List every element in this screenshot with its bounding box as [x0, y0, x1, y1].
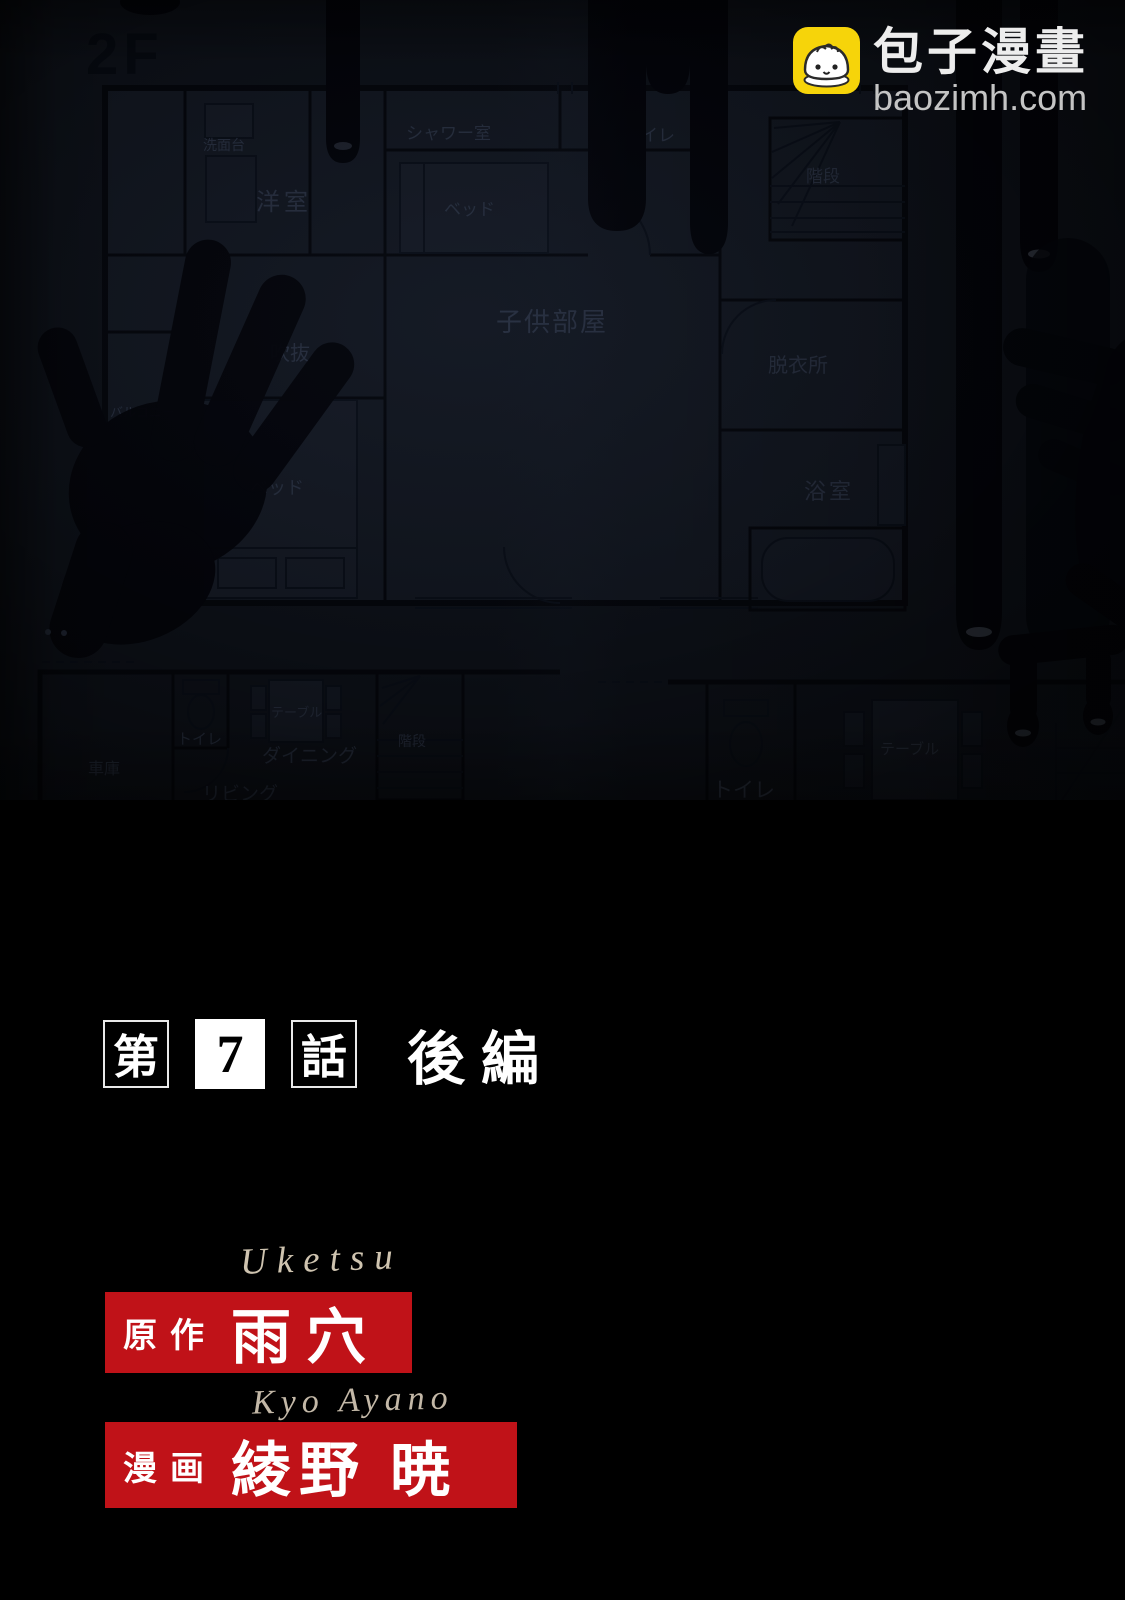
- original-author-credit: 原作 雨穴: [105, 1292, 412, 1373]
- watermark-site-domain: baozimh.com: [873, 77, 1089, 118]
- label-1f-dining: ダイニング: [262, 745, 357, 767]
- label-2f-kids-room: 子供部屋: [496, 307, 608, 337]
- baozi-bun-icon: [793, 27, 860, 99]
- label-2f-washstand: 洗面台: [203, 137, 245, 153]
- floor-label-2f: 2F: [86, 22, 164, 87]
- label-1f-stairs: 階段: [398, 733, 426, 749]
- floorplan-section: 2F: [0, 0, 1125, 800]
- label-2f-stairs: 階段: [806, 167, 840, 186]
- manga-page: 2F: [0, 0, 1125, 1600]
- watermark-site-name: 包子漫畫: [873, 27, 1089, 77]
- label-1fr-table: テーブル: [880, 740, 939, 758]
- artist-name: 綾野 暁: [231, 1422, 458, 1509]
- chapter-prefix-box: 第: [103, 1020, 169, 1088]
- label-1f-garage: 車庫: [88, 760, 120, 778]
- floorplan-1f-left: 車庫 トイレ テーブル ダイニング リビング 階段: [40, 662, 560, 800]
- original-author-romaji: Uketsu: [239, 1235, 403, 1284]
- original-author-role-label: 原作: [123, 1308, 217, 1357]
- chapter-part-label: 後編: [407, 1012, 555, 1096]
- label-2f-shower-room: シャワー室: [406, 124, 491, 143]
- label-2f-western-room: 洋室: [256, 189, 312, 216]
- artist-role-label: 漫画: [123, 1441, 217, 1490]
- label-2f-bed-top: ベッド: [444, 200, 495, 219]
- label-1f-living: リビング: [202, 783, 278, 800]
- label-2f-bathroom: 浴室: [804, 479, 854, 504]
- chapter-number-box: 7: [195, 1019, 265, 1089]
- floorplan-drawing: 2F: [0, 0, 1125, 800]
- artist-romaji: Kyo Ayano: [252, 1379, 455, 1422]
- ink-blot-top-left: [120, 0, 180, 15]
- label-1f-table: テーブル: [271, 705, 322, 720]
- floorplan-1f-right: トイレ テーブル: [598, 682, 1125, 800]
- original-author-name: 雨穴: [231, 1289, 381, 1376]
- site-watermark: 包子漫畫 baozimh.com: [793, 27, 1089, 118]
- chapter-title: 第 7 話 後編: [103, 1012, 555, 1096]
- label-1fr-toilet: トイレ: [712, 779, 775, 800]
- label-2f-dressing-room: 脱衣所: [768, 354, 828, 377]
- label-1f-toilet: トイレ: [177, 731, 222, 748]
- chapter-suffix-box: 話: [291, 1020, 357, 1088]
- artist-credit: 漫画 綾野 暁: [105, 1422, 517, 1508]
